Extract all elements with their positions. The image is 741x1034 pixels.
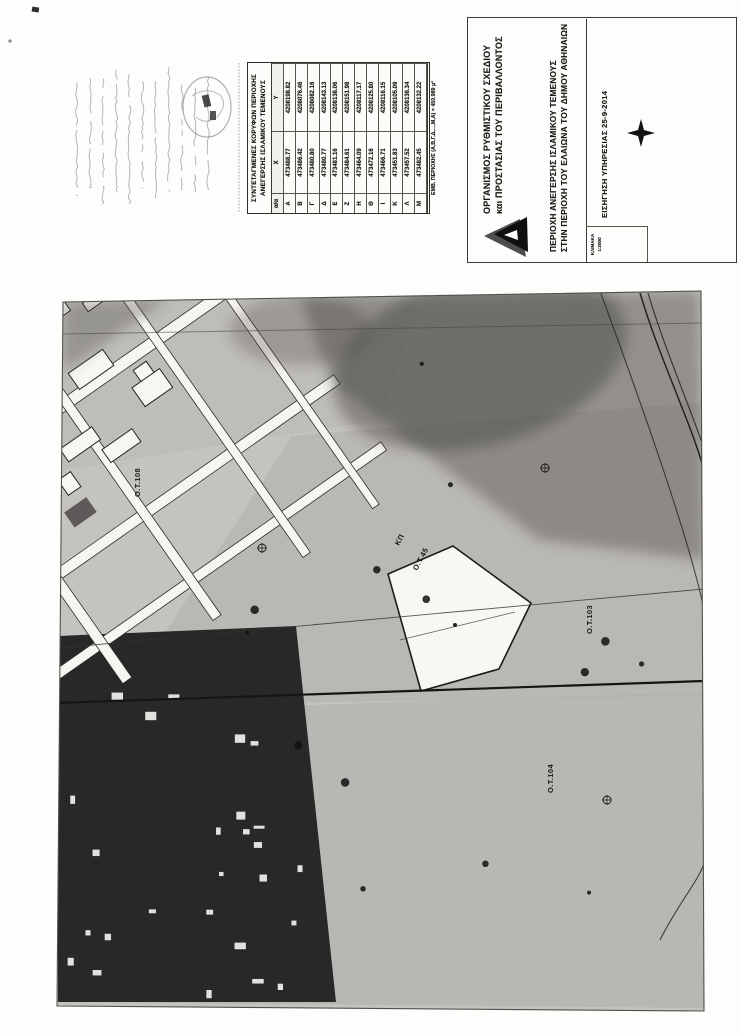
coord-cell: 473488.77 (284, 131, 296, 193)
organization-name-line1: ΟΡΓΑΝΙΣΜΟΣ ΡΥΘΜΙΣΤΙΚΟΥ ΣΧΕΔΙΟΥ (482, 18, 494, 214)
coord-table-title: ΣΥΝΤΕΤΑΓΜΕΝΕΣ ΚΟΡΥΦΩΝ ΠΕΡΙΟΧΗΣ ΑΝΕΓΕΡΣΗΣ… (248, 63, 272, 213)
north-arrow-icon (626, 118, 656, 148)
title-block-content: ΟΡΓΑΝΙΣΜΟΣ ΡΥΘΜΙΣΤΙΚΟΥ ΣΧΕΔΙΟΥ και ΠΡΟΣΤ… (467, 17, 737, 263)
project-title: ΠΕΡΙΟΧΗ ΑΝΕΓΕΡΣΗΣ ΙΣΛΑΜΙΚΟΥ ΤΕΜΕΝΟΥΣ ΣΤΗ… (548, 22, 570, 252)
map-label: Ο.Τ.108 (133, 468, 142, 497)
title-block: ΟΡΓΑΝΙΣΜΟΣ ΡΥΘΜΙΣΤΙΚΟΥ ΣΧΕΔΙΟΥ και ΠΡΟΣΤ… (467, 17, 737, 263)
map-label: Ο.Τ.103 (585, 605, 594, 634)
coord-cell: 473486.42 (296, 131, 308, 193)
coord-cell: Γ (308, 193, 320, 213)
coord-cell: 4208105.09 (391, 63, 403, 131)
organization-name-line2: και ΠΡΟΣΤΑΣΙΑΣ ΤΟΥ ΠΕΡΙΒΑΛΛΟΝΤΟΣ (494, 18, 506, 214)
coord-cell: Κ (391, 193, 403, 213)
coord-cell: Μ (415, 193, 427, 213)
coordinate-table: ΣΥΝΤΕΤΑΓΜΕΝΕΣ ΚΟΡΥΦΩΝ ΠΕΡΙΟΧΗΣ ΑΝΕΓΕΡΣΗΣ… (246, 61, 432, 217)
service-note: ΕΙΣΗΓΗΣΗ ΥΠΗΡΕΣΙΑΣ 25-9-2014 (600, 22, 609, 218)
coord-cell: Ι (379, 193, 391, 213)
scanned-plan-page: Ο.Τ.108ΚΠΟ.Τ.45Ο.Τ.103Ο.Τ.104 ΣΥΝΤΕΤΑΓΜΕ… (0, 0, 741, 1034)
coord-cell: α/α (272, 193, 284, 213)
coord-cell: Λ (403, 193, 415, 213)
coord-cell: 4208117.17 (355, 63, 367, 131)
project-title-line1: ΠΕΡΙΟΧΗ ΑΝΕΓΕΡΣΗΣ ΙΣΛΑΜΙΚΟΥ ΤΕΜΕΝΟΥΣ (548, 22, 559, 252)
page-corner-marks (8, 7, 39, 43)
scale-cell: ΚΛΙΜΑΚΑ 1:2000 (586, 226, 648, 262)
coord-cell: 4208082.16 (308, 63, 320, 131)
coord-cell: 4208132.22 (415, 63, 427, 131)
coord-cell: 4208136.34 (403, 63, 415, 131)
coord-cell: 473451.83 (391, 131, 403, 193)
coord-cell: Ε (331, 193, 343, 213)
organization-name: ΟΡΓΑΝΙΣΜΟΣ ΡΥΘΜΙΣΤΙΚΟΥ ΣΧΕΔΙΟΥ και ΠΡΟΣΤ… (482, 18, 505, 214)
coord-table-title-line1: ΣΥΝΤΕΤΑΓΜΕΝΕΣ ΚΟΡΥΦΩΝ ΠΕΡΙΟΧΗΣ (250, 63, 259, 213)
handwritten-note (76, 63, 239, 213)
coord-cell: 473482.45 (415, 131, 427, 193)
coord-cell: Α (284, 193, 296, 213)
coord-cell: 473480.80 (308, 131, 320, 193)
coordinate-table-content: ΣΥΝΤΕΤΑΓΜΕΝΕΣ ΚΟΡΥΦΩΝ ΠΕΡΙΟΧΗΣ ΑΝΕΓΕΡΣΗΣ… (247, 62, 430, 214)
coord-cell: 4208116.15 (379, 63, 391, 131)
coord-cell: 4208076.46 (296, 63, 308, 131)
coord-cell: X (272, 131, 284, 193)
project-title-line2: ΣΤΗΝ ΠΕΡΙΟΧΗ ΤΟΥ ΕΛΑΙΩΝΑ ΤΟΥ ΔΗΜΟΥ ΑΘΗΝΑ… (559, 22, 570, 252)
coord-cell: 473464.09 (355, 131, 367, 193)
coord-table-footer: ΕΜΒ. ΠΕΡΙΟΧΗΣ (Α,Β,Γ,Δ,...,Μ,Α) = 450.98… (427, 63, 442, 213)
coord-cell: 4208143.13 (320, 63, 332, 131)
coord-cell: 4208138.06 (331, 63, 343, 131)
scale-value: 1:2000 (597, 227, 604, 262)
coord-cell: Β (296, 193, 308, 213)
coord-cell: Δ (320, 193, 332, 213)
coord-cell: 4208151.98 (343, 63, 355, 131)
coord-cell: 4208125.80 (367, 63, 379, 131)
coord-cell: Η (355, 193, 367, 213)
coord-cell: Y (272, 63, 284, 131)
coord-cell: Θ (367, 193, 379, 213)
coord-cell: 473466.71 (379, 131, 391, 193)
coord-table-title-line2: ΑΝΕΓΕΡΣΗΣ ΙΣΛΑΜΙΚΟΥ ΤΕΜΕΝΟΥΣ (259, 63, 268, 213)
coord-grid: α/αXYΑ473488.774208198.82Β473486.4242080… (272, 63, 427, 213)
coord-cell: 473472.16 (367, 131, 379, 193)
coord-cell: 473457.52 (403, 131, 415, 193)
orsa-logo-icon (480, 216, 530, 258)
map-label: Ο.Τ.104 (546, 763, 555, 793)
coord-cell: Ζ (343, 193, 355, 213)
coord-cell: 473480.77 (320, 131, 332, 193)
coord-cell: 473481.16 (331, 131, 343, 193)
coord-cell: 473484.61 (343, 131, 355, 193)
coord-cell: 4208198.82 (284, 63, 296, 131)
